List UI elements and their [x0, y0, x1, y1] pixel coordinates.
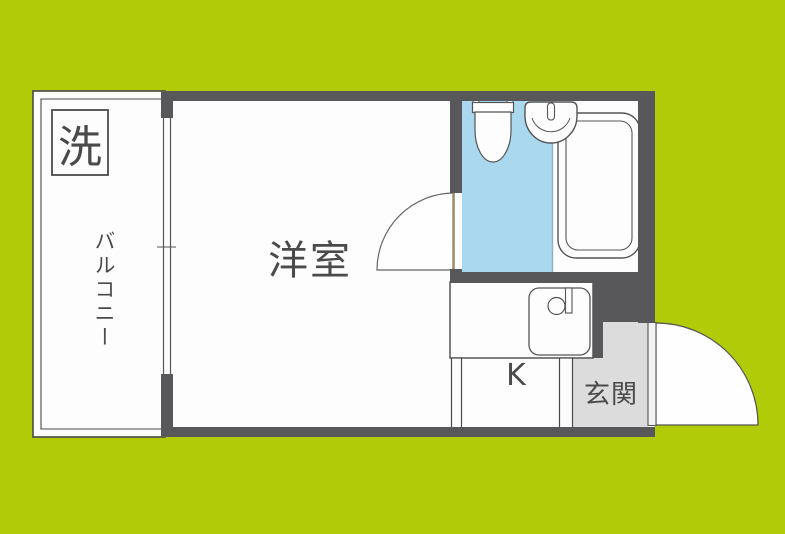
- floorplan: 洗 バルコニー 洋室 K 玄関: [0, 0, 785, 534]
- entrance-label: 玄関: [578, 374, 644, 411]
- faucet-icon: [566, 288, 573, 313]
- kitchen-sink-icon: [529, 288, 590, 355]
- balcony-label: バルコニー: [88, 230, 120, 380]
- entrance-step: [560, 358, 573, 428]
- kitchen-label: K: [490, 358, 542, 394]
- laundry-label: 洗: [52, 110, 108, 175]
- western-room-label: 洋室: [240, 228, 380, 286]
- partition-stub-left: [452, 358, 462, 428]
- kitchen-counter: [450, 282, 593, 358]
- entrance-door-icon: [648, 323, 758, 426]
- faucet-icon: [548, 103, 555, 120]
